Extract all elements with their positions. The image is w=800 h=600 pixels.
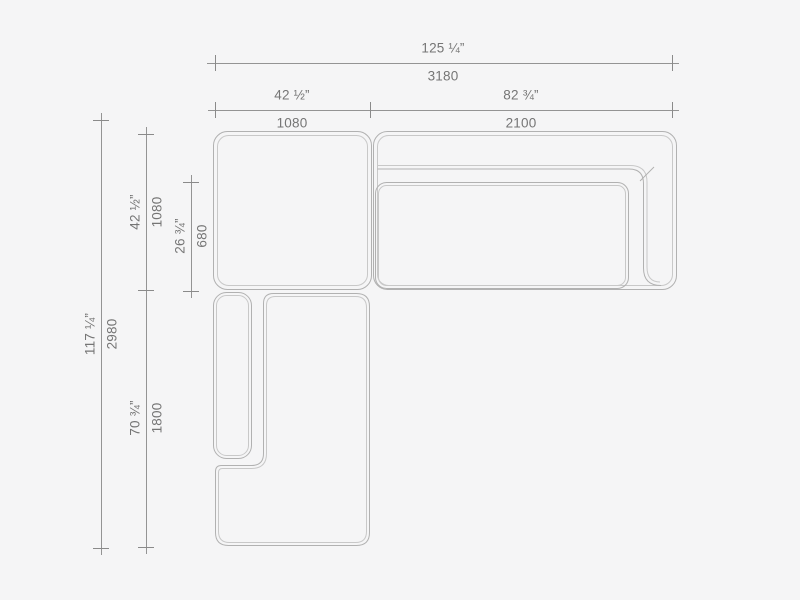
- sofa-top-view-drawing: [0, 0, 800, 600]
- dim-overall-depth-inches: 117 ¼”: [83, 313, 97, 355]
- dim-overall-depth-mm: 2980: [105, 319, 119, 350]
- dim-tick: [672, 102, 673, 118]
- dim-tick: [138, 134, 154, 135]
- dim-tick: [93, 120, 109, 121]
- dim-tick: [183, 291, 199, 292]
- dim-corner-depth-inches: 42 ½”: [128, 194, 142, 230]
- dim-tick: [215, 102, 216, 118]
- dim-line-seat-depth: [191, 175, 192, 298]
- dim-seat-depth-mm: 680: [195, 224, 209, 247]
- dim-overall-width-inches: 125 ¼”: [421, 41, 464, 55]
- dim-tick: [93, 548, 109, 549]
- dim-right-width-mm: 2100: [506, 116, 537, 130]
- backrest-armrest-inner-edge: [378, 169, 662, 286]
- dim-line-left-segments: [146, 127, 147, 554]
- dim-line-segment-widths: [208, 110, 679, 111]
- dim-tick: [215, 55, 216, 71]
- dim-overall-width-mm: 3180: [428, 69, 459, 83]
- dim-left-width-inches: 42 ½”: [274, 88, 310, 102]
- sofa-dimension-drawing: 125 ¼” 3180 42 ½” 1080 82 ¾” 2100 117 ¼”…: [0, 0, 800, 600]
- dim-corner-depth-mm: 1080: [150, 197, 164, 228]
- dim-right-width-inches: 82 ¾”: [503, 88, 539, 102]
- dim-tick: [672, 55, 673, 71]
- dim-tick: [138, 547, 154, 548]
- chaise-seat-outline: [216, 294, 370, 546]
- sofa-seat-cushion: [376, 183, 629, 289]
- dim-line-overall-depth: [101, 113, 102, 555]
- dim-tick: [370, 102, 371, 118]
- module-corner-ottoman: [214, 132, 372, 290]
- dim-tick: [183, 182, 199, 183]
- module-sofa-right: [374, 132, 677, 290]
- dim-tick: [138, 290, 154, 291]
- module-chaise-left: [214, 293, 370, 546]
- dim-chaise-length-inches: 70 ¾”: [128, 400, 142, 436]
- dim-left-width-mm: 1080: [277, 116, 308, 130]
- dim-line-overall-width: [207, 63, 679, 64]
- dim-chaise-length-mm: 1800: [150, 403, 164, 434]
- dim-seat-depth-inches: 26 ¾”: [173, 218, 187, 254]
- chaise-armrest-cushion: [214, 293, 252, 459]
